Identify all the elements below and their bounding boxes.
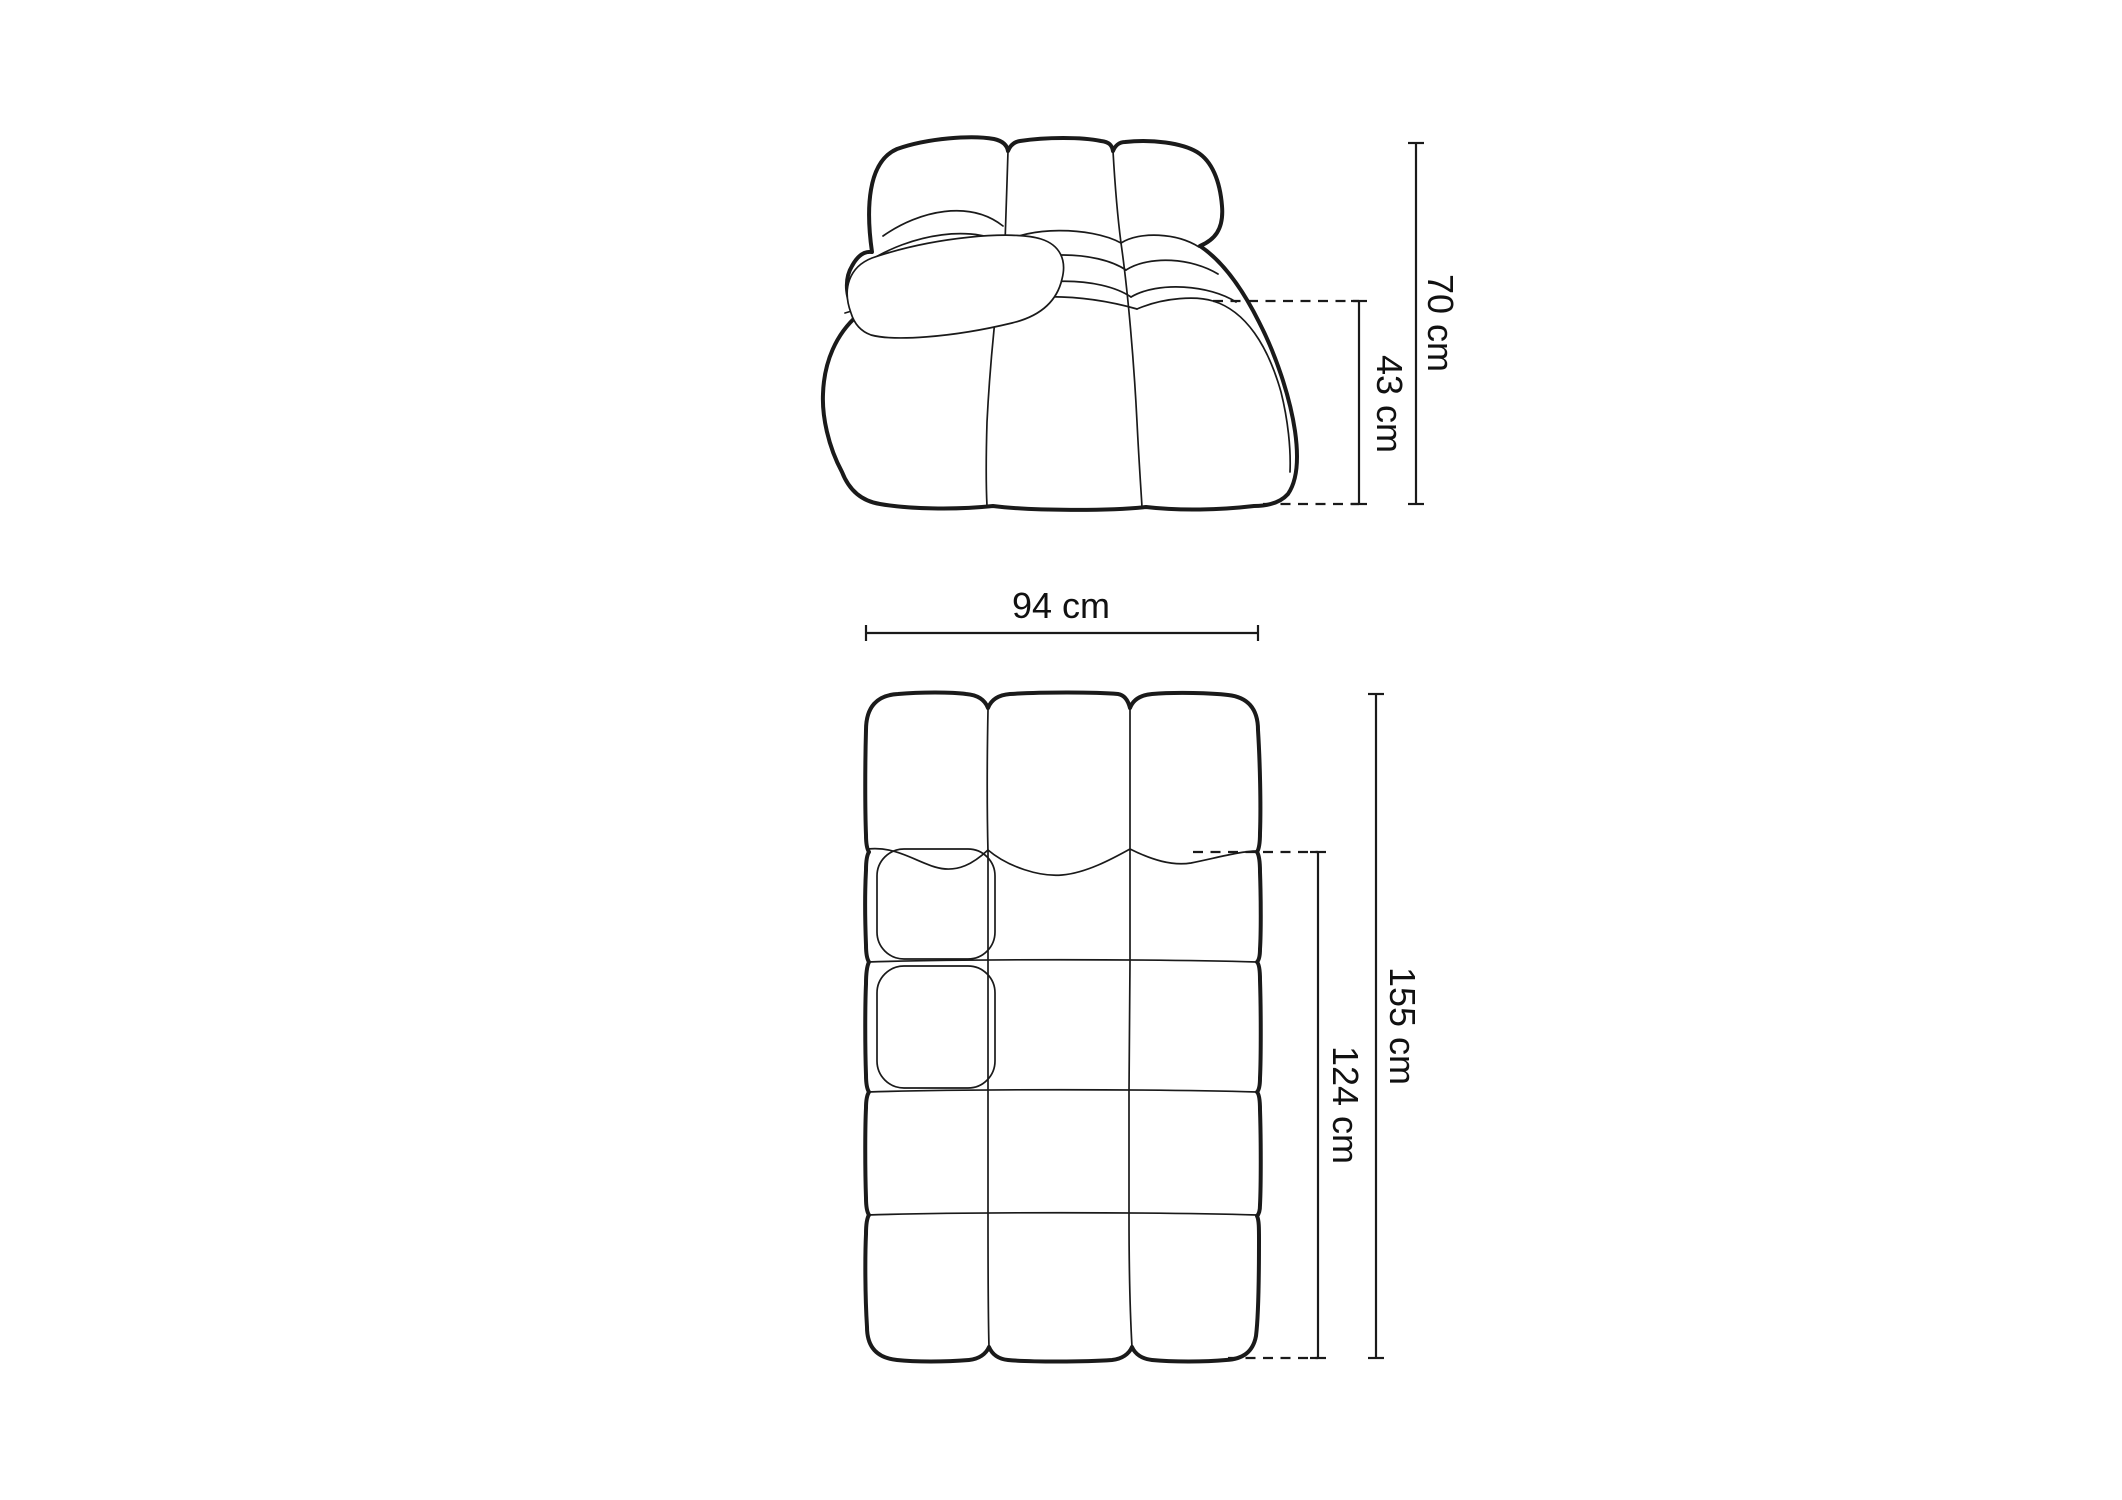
seat-height-dimension-line bbox=[1351, 301, 1367, 504]
seat-depth-label: 124 cm bbox=[1327, 1046, 1363, 1164]
sofa-top-outline bbox=[865, 693, 1261, 1362]
sofa-dimension-diagram: 70 cm 43 cm 94 cm 155 cm 124 cm bbox=[0, 0, 2122, 1500]
top-view-drawing bbox=[865, 625, 1384, 1362]
seat-height-label: 43 cm bbox=[1371, 355, 1407, 453]
front-view-drawing bbox=[823, 137, 1424, 510]
width-dimension-line bbox=[866, 625, 1258, 641]
total-height-label: 70 cm bbox=[1422, 274, 1458, 372]
width-label: 94 cm bbox=[1012, 588, 1110, 624]
total-depth-label: 155 cm bbox=[1384, 967, 1420, 1085]
diagram-line-art bbox=[0, 0, 2122, 1500]
seat-depth-dimension-line bbox=[1310, 852, 1326, 1358]
